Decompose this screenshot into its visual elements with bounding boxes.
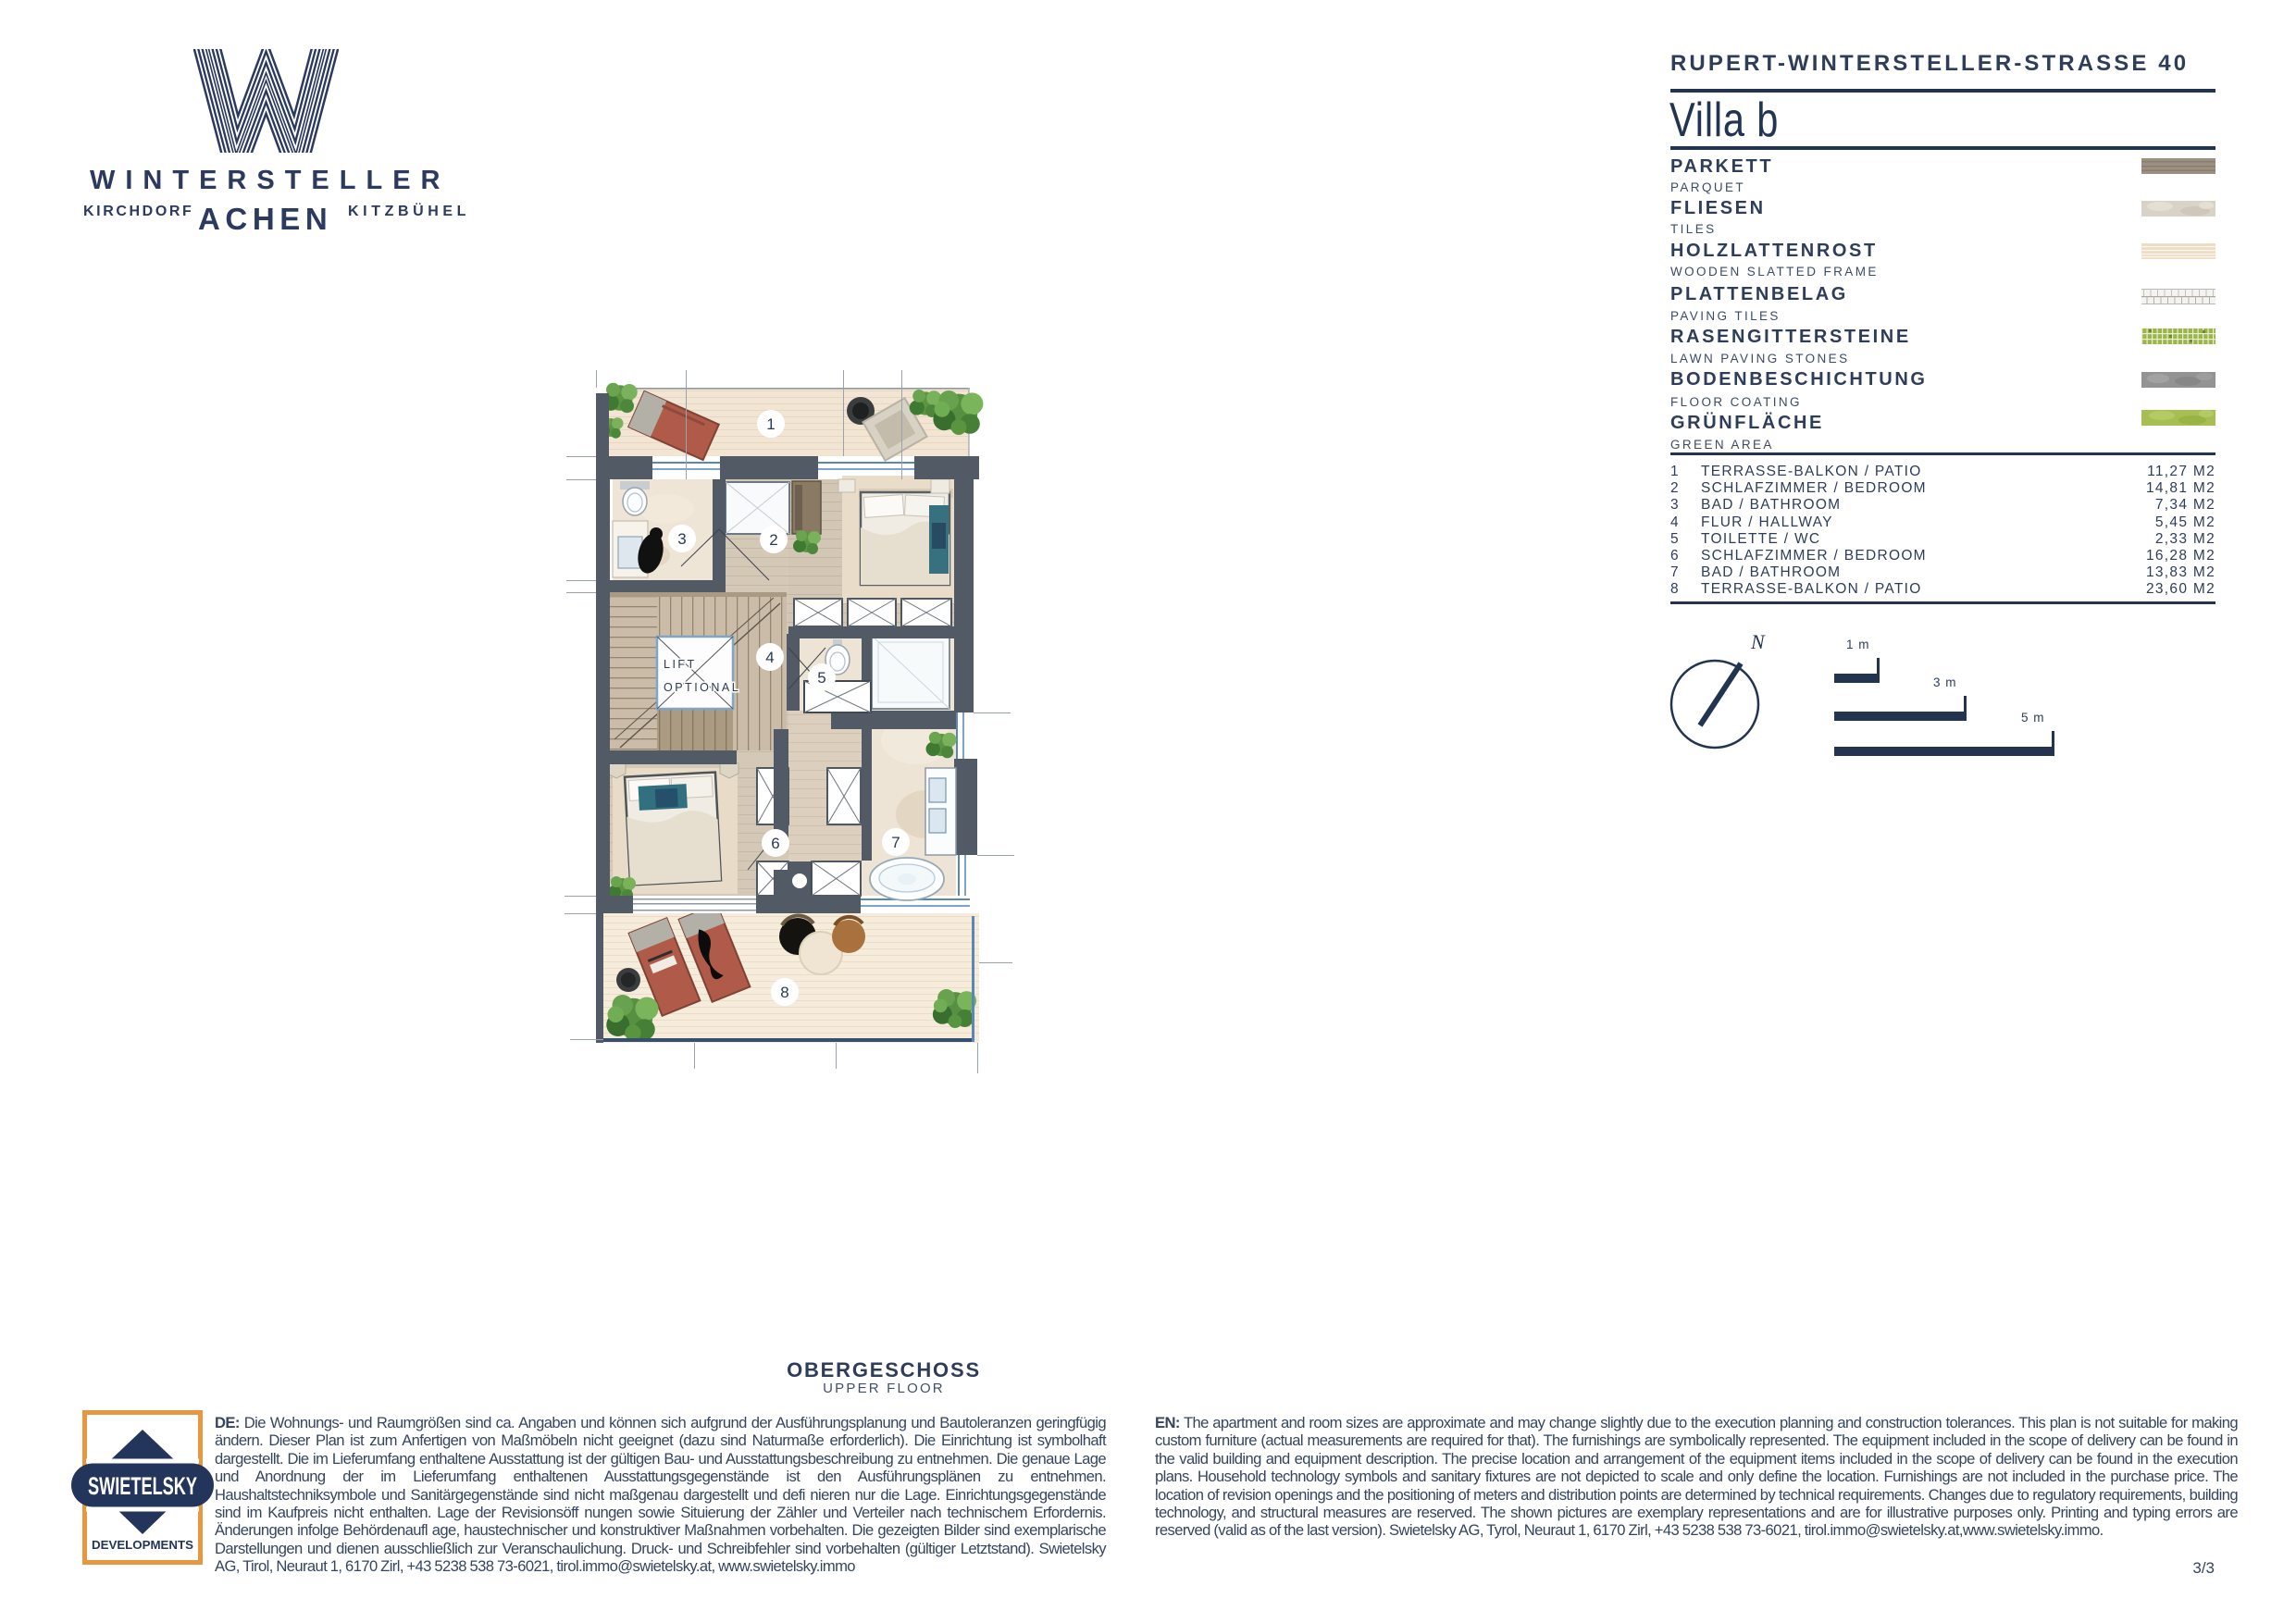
svg-text:3: 3 xyxy=(677,530,686,548)
svg-text:1: 1 xyxy=(766,415,775,433)
svg-text:DEVELOPMENTS: DEVELOPMENTS xyxy=(92,1539,193,1552)
svg-text:5: 5 xyxy=(817,669,825,687)
svg-text:2: 2 xyxy=(769,531,777,549)
svg-text:OPTIONAL: OPTIONAL xyxy=(664,681,740,694)
svg-text:N: N xyxy=(1750,630,1766,653)
svg-text:4: 4 xyxy=(765,649,774,666)
svg-text:LIFT: LIFT xyxy=(664,658,697,671)
svg-text:8: 8 xyxy=(780,984,788,1001)
svg-text:SWIETELSKY: SWIETELSKY xyxy=(88,1472,197,1500)
svg-text:6: 6 xyxy=(771,835,779,852)
svg-text:7: 7 xyxy=(891,834,900,851)
